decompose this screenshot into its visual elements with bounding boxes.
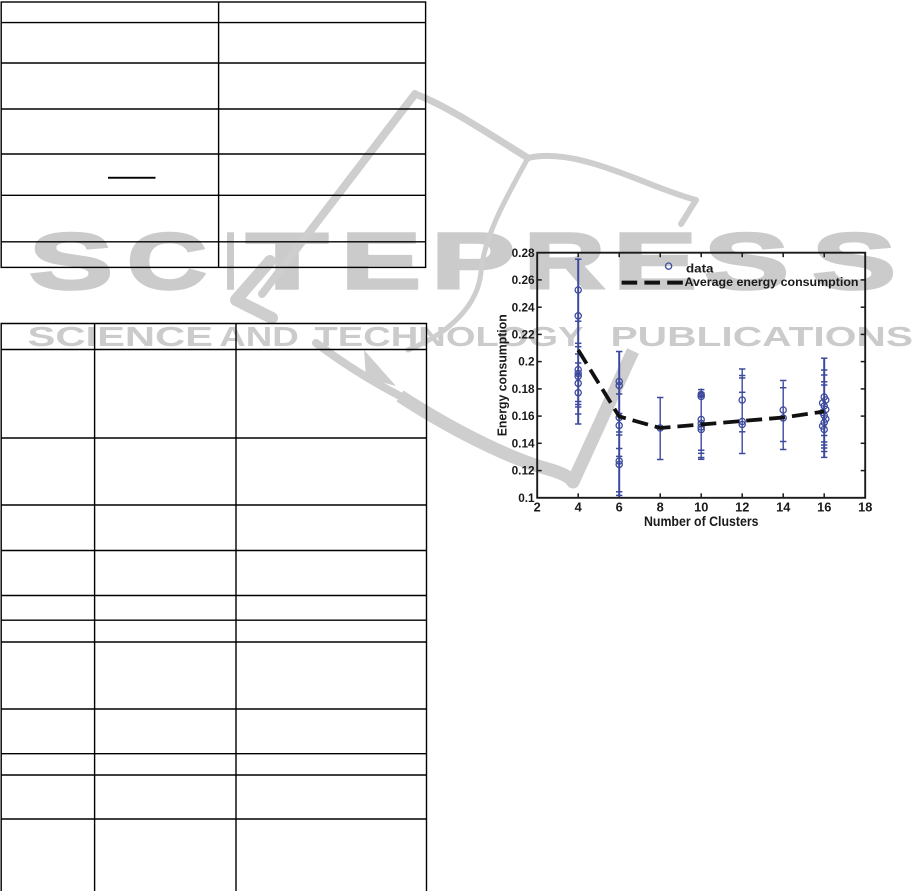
svg-text:18: 18 xyxy=(858,500,872,515)
svg-text:data: data xyxy=(686,262,714,276)
svg-text:P: P xyxy=(431,217,515,306)
svg-text:0.16: 0.16 xyxy=(512,409,535,423)
svg-text:0.1: 0.1 xyxy=(518,491,535,505)
svg-text:0.28: 0.28 xyxy=(512,246,535,260)
svg-text:S: S xyxy=(812,217,896,306)
svg-text:0.14: 0.14 xyxy=(512,436,535,450)
svg-text:I: I xyxy=(225,217,236,306)
svg-text:Average energy consumption: Average energy consumption xyxy=(685,275,859,289)
svg-text:12: 12 xyxy=(735,500,749,515)
svg-text:2: 2 xyxy=(534,500,541,515)
svg-text:E: E xyxy=(341,217,421,306)
svg-text:0.12: 0.12 xyxy=(512,464,535,478)
svg-text:16: 16 xyxy=(817,500,831,515)
svg-text:SCIENCE: SCIENCE xyxy=(28,321,214,352)
svg-text:Energy consumption: Energy consumption xyxy=(496,314,510,436)
svg-text:0.26: 0.26 xyxy=(512,273,535,287)
svg-text:C: C xyxy=(127,217,207,306)
svg-text:0.24: 0.24 xyxy=(512,300,535,314)
svg-text:R: R xyxy=(524,217,605,306)
svg-text:S: S xyxy=(29,217,113,306)
svg-text:4: 4 xyxy=(575,500,583,515)
svg-text:PUBLICATIONS: PUBLICATIONS xyxy=(611,321,914,352)
svg-text:14: 14 xyxy=(776,500,791,515)
svg-text:S: S xyxy=(704,217,789,306)
svg-text:0.22: 0.22 xyxy=(512,328,535,342)
svg-text:0.2: 0.2 xyxy=(518,355,535,369)
svg-text:8: 8 xyxy=(657,500,664,515)
svg-text:10: 10 xyxy=(694,500,708,515)
svg-text:AND: AND xyxy=(219,321,298,352)
svg-text:Number of Clusters: Number of Clusters xyxy=(644,514,759,529)
svg-text:E: E xyxy=(613,217,697,306)
svg-text:6: 6 xyxy=(616,500,623,515)
svg-text:0.18: 0.18 xyxy=(512,382,535,396)
